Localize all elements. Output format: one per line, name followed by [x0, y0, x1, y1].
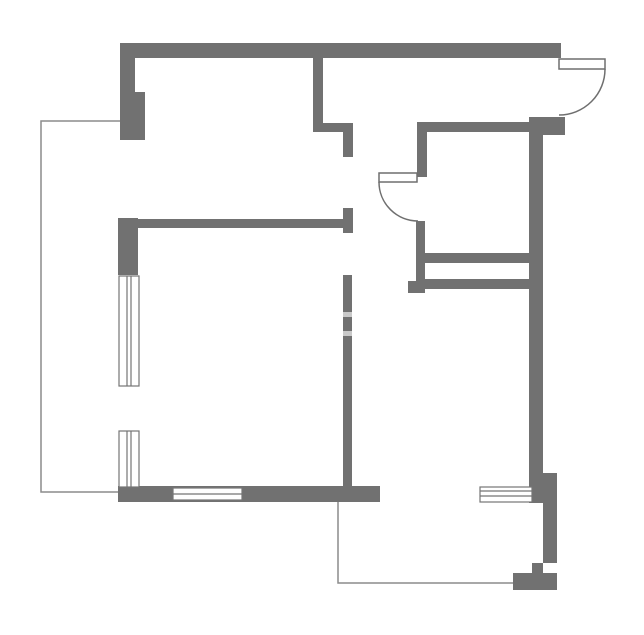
left-window-lower — [119, 431, 139, 487]
central-wall-joint-lower — [343, 331, 352, 336]
right-wall-step — [532, 563, 543, 573]
top-left-pilaster — [135, 92, 145, 140]
top-left-corner-wall — [120, 43, 135, 140]
floor-plan-page — [0, 0, 644, 635]
right-exterior-wall — [529, 135, 543, 503]
bottom-right-window-frame — [480, 487, 532, 502]
kitchen-door-leaf — [379, 173, 417, 182]
closet-bar-lower — [425, 279, 537, 289]
left-window-lower-frame — [119, 431, 139, 487]
floor-plan-drawing — [0, 0, 644, 635]
kitchen-door-wall-upper — [417, 122, 427, 177]
bedroom-divider-wall — [138, 219, 348, 228]
left-balcony-outline — [41, 121, 120, 492]
kitchen-door — [379, 173, 418, 221]
bottom-window — [173, 488, 242, 500]
entry-door-swing-arc — [559, 69, 605, 115]
entry-wall-horizontal — [417, 122, 530, 132]
hall-partition-horizontal — [313, 123, 353, 132]
kitchen-wall-foot — [408, 281, 425, 293]
top-exterior-wall — [120, 43, 561, 58]
right-wall-side-column — [543, 473, 557, 563]
central-wall-joint-upper — [343, 312, 352, 317]
balcony-outlines-layer — [41, 121, 513, 583]
doors-layer — [379, 59, 605, 221]
central-long-wall — [343, 275, 352, 486]
divider-end-cap — [343, 208, 353, 233]
left-window-upper — [119, 276, 139, 386]
hall-partition-stub — [343, 132, 353, 157]
hall-partition-vertical — [313, 58, 323, 132]
windows-layer — [119, 276, 532, 502]
closet-bar-upper — [425, 253, 537, 263]
entry-door-leaf — [559, 59, 605, 69]
walls-layer — [118, 43, 565, 590]
bottom-exterior-wall — [118, 486, 380, 502]
left-window-upper-frame — [119, 276, 139, 386]
right-wall-top-block — [529, 117, 565, 135]
entry-door — [559, 59, 605, 115]
right-wall-bottom-block — [513, 573, 557, 590]
left-wall-block — [118, 218, 138, 275]
bottom-right-window — [480, 487, 532, 502]
kitchen-door-swing-arc — [379, 182, 418, 221]
bottom-balcony-outline — [338, 502, 513, 583]
